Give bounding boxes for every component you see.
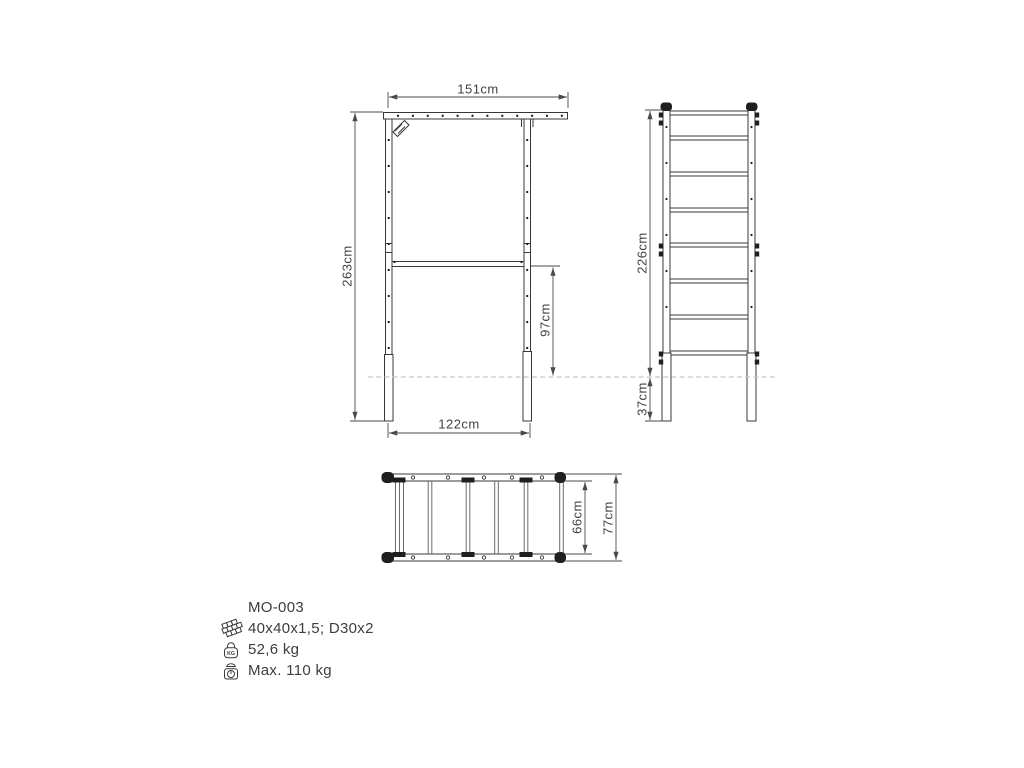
spec-row-weight: KG 52,6 kg <box>214 639 374 660</box>
dimension-lines <box>350 92 663 561</box>
weight-icon: KG <box>220 639 242 660</box>
drawing-canvas <box>0 0 1024 768</box>
top-view-drawing <box>382 472 567 563</box>
side-view-drawing <box>659 103 759 422</box>
spec-row-profile: 40x40x1,5; D30x2 <box>214 618 374 639</box>
front-height-label: 263cm <box>340 245 355 287</box>
technical-drawing-page: 151cm 263cm 97cm 122cm 226cm 37cm 66cm 7… <box>0 0 1024 768</box>
max-load-scale-icon <box>220 660 242 682</box>
max-load-value: Max. 110 kg <box>248 662 332 679</box>
steel-profiles-icon <box>219 618 244 639</box>
front-view-drawing <box>384 113 568 422</box>
spec-row-code: MO-003 <box>214 597 374 618</box>
kg-badge: KG <box>227 651 235 657</box>
product-code: MO-003 <box>248 599 304 616</box>
front-bottom-width-label: 122cm <box>438 417 480 432</box>
spec-block: MO-003 40x40x1,5; D30x2 <box>214 597 374 681</box>
top-inner-depth-label: 66cm <box>570 500 585 534</box>
top-outer-depth-label: 77cm <box>601 501 616 535</box>
side-underground-label: 37cm <box>635 382 650 416</box>
weight-value: 52,6 kg <box>248 641 299 658</box>
spec-row-max-load: Max. 110 kg <box>214 660 374 681</box>
front-crossbar-height-label: 97cm <box>538 303 553 337</box>
side-height-label: 226cm <box>635 232 650 274</box>
profile-spec: 40x40x1,5; D30x2 <box>248 620 374 637</box>
front-top-width-label: 151cm <box>457 82 499 97</box>
